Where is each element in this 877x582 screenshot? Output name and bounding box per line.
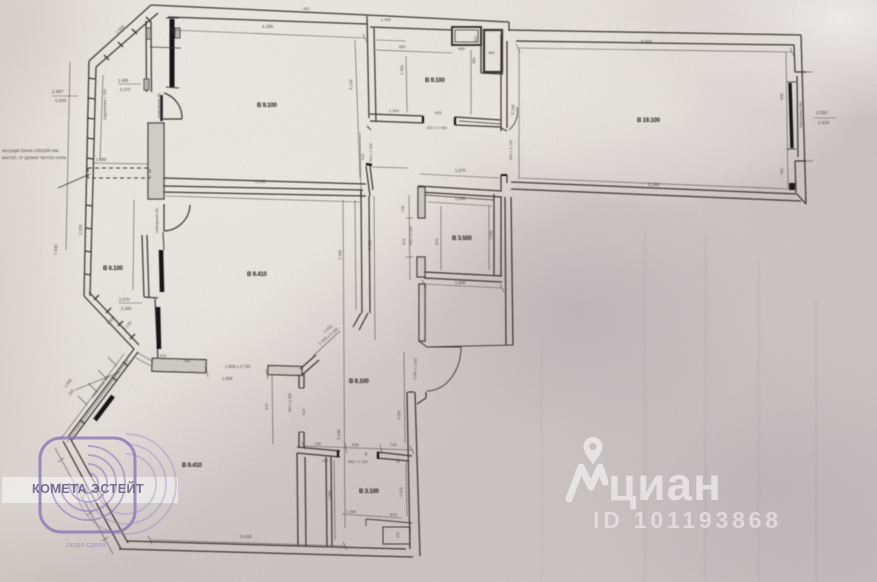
svg-text:В 9.410: В 9.410 xyxy=(247,272,267,278)
svg-text:900 х 2 100: 900 х 2 100 xyxy=(509,140,513,160)
svg-text:915: 915 xyxy=(361,154,365,160)
svg-text:помещение (В): помещение (В) xyxy=(157,93,161,118)
svg-text:910 х 2 160: 910 х 2 160 xyxy=(288,393,292,412)
svg-text:726: 726 xyxy=(401,206,405,212)
svg-text:несущая балка 160х260 мм.: несущая балка 160х260 мм. xyxy=(2,148,59,153)
svg-text:1.905: 1.905 xyxy=(489,230,493,240)
svg-text:3.146: 3.146 xyxy=(510,104,515,115)
svg-text:2.050: 2.050 xyxy=(816,110,828,115)
svg-text:728: 728 xyxy=(314,441,321,446)
svg-text:1.055: 1.055 xyxy=(381,17,392,22)
svg-text:1.840: 1.840 xyxy=(455,280,466,285)
svg-text:подоконник 950: подоконник 950 xyxy=(799,102,803,128)
svg-text:2.070: 2.070 xyxy=(119,297,130,302)
svg-text:860: 860 xyxy=(399,44,406,49)
svg-text:помещение (В): помещение (В) xyxy=(155,208,159,233)
svg-text:ID 101193868: ID 101193868 xyxy=(593,507,782,533)
svg-text:1.048: 1.048 xyxy=(346,509,357,514)
svg-text:1.420: 1.420 xyxy=(399,487,403,497)
svg-text:выступ. от уровня чистого пола: выступ. от уровня чистого пола xyxy=(2,155,67,160)
svg-text:скоро сдела: скоро сдела xyxy=(66,542,106,549)
svg-text:1.065: 1.065 xyxy=(389,108,400,113)
svg-text:740: 740 xyxy=(390,442,397,447)
svg-text:В 6.100: В 6.100 xyxy=(103,266,123,272)
svg-text:485: 485 xyxy=(488,50,495,55)
svg-text:В 9.100: В 9.100 xyxy=(425,78,445,84)
svg-text:90: 90 xyxy=(364,452,368,456)
svg-text:970: 970 xyxy=(265,404,269,410)
svg-text:3.346: 3.346 xyxy=(336,429,341,440)
svg-text:830: 830 xyxy=(435,110,442,115)
svg-text:В 9.100: В 9.100 xyxy=(257,103,277,109)
svg-text:В 8.100: В 8.100 xyxy=(349,379,369,385)
svg-text:90: 90 xyxy=(396,459,400,463)
svg-text:1.885: 1.885 xyxy=(118,78,129,83)
svg-text:870: 870 xyxy=(435,239,439,245)
svg-text:1.080: 1.080 xyxy=(96,157,107,162)
svg-text:2.345: 2.345 xyxy=(337,249,342,260)
svg-text:3.150: 3.150 xyxy=(367,239,372,250)
svg-text:1 600 х 2 730: 1 600 х 2 730 xyxy=(225,364,251,369)
svg-text:3.134: 3.134 xyxy=(348,79,353,90)
svg-text:6.265: 6.265 xyxy=(648,182,660,187)
svg-text:1.840: 1.840 xyxy=(455,196,466,201)
svg-text:960: 960 xyxy=(458,46,465,51)
svg-text:4.245: 4.245 xyxy=(255,179,266,184)
svg-text:760: 760 xyxy=(779,167,784,175)
svg-text:1.997: 1.997 xyxy=(52,89,64,94)
svg-text:1.630: 1.630 xyxy=(818,120,830,125)
svg-text:1.600: 1.600 xyxy=(55,98,67,103)
svg-text:140: 140 xyxy=(322,459,328,463)
svg-text:1.888: 1.888 xyxy=(328,490,332,500)
svg-text:905: 905 xyxy=(779,92,784,100)
svg-text:подоконник 1 160: подоконник 1 160 xyxy=(103,89,107,120)
svg-text:7.435: 7.435 xyxy=(53,244,58,255)
svg-text:905 х 2 100: 905 х 2 100 xyxy=(348,460,368,464)
svg-text:625: 625 xyxy=(160,354,166,358)
svg-text:1.280: 1.280 xyxy=(397,410,401,420)
svg-text:циан: циан xyxy=(608,458,722,510)
svg-text:4.265: 4.265 xyxy=(262,24,274,29)
svg-text:0.375: 0.375 xyxy=(120,87,131,92)
svg-text:838: 838 xyxy=(352,442,359,447)
svg-text:2.205: 2.205 xyxy=(78,224,83,235)
svg-text:1.095: 1.095 xyxy=(399,64,404,75)
svg-text:810: 810 xyxy=(402,239,406,245)
svg-text:В 3.500: В 3.500 xyxy=(452,236,472,242)
svg-text:6.065: 6.065 xyxy=(641,39,653,44)
svg-text:1.970: 1.970 xyxy=(455,168,466,173)
svg-text:2.380: 2.380 xyxy=(121,306,132,311)
svg-text:495: 495 xyxy=(472,58,476,64)
svg-text:875: 875 xyxy=(390,512,397,517)
svg-text:910: 910 xyxy=(302,409,306,415)
svg-text:820 х 2 460: 820 х 2 460 xyxy=(427,126,447,130)
svg-text:1.065 х 2 160: 1.065 х 2 160 xyxy=(413,358,418,380)
svg-text:1.600: 1.600 xyxy=(222,376,233,381)
svg-text:300: 300 xyxy=(303,7,309,11)
svg-text:375: 375 xyxy=(396,532,400,538)
svg-text:В 9.410: В 9.410 xyxy=(182,463,202,469)
svg-text:935: 935 xyxy=(184,359,190,363)
svg-text:915 х 2 160: 915 х 2 160 xyxy=(369,143,373,162)
svg-text:В 19.100: В 19.100 xyxy=(637,118,661,124)
svg-text:300: 300 xyxy=(474,36,478,42)
svg-text:915 х 2 100: 915 х 2 100 xyxy=(409,226,413,245)
svg-text:КОМЕТА ЭСТЕЙТ: КОМЕТА ЭСТЕЙТ xyxy=(32,481,144,496)
svg-text:3.418: 3.418 xyxy=(240,534,252,539)
svg-text:В 3.100: В 3.100 xyxy=(359,489,379,495)
